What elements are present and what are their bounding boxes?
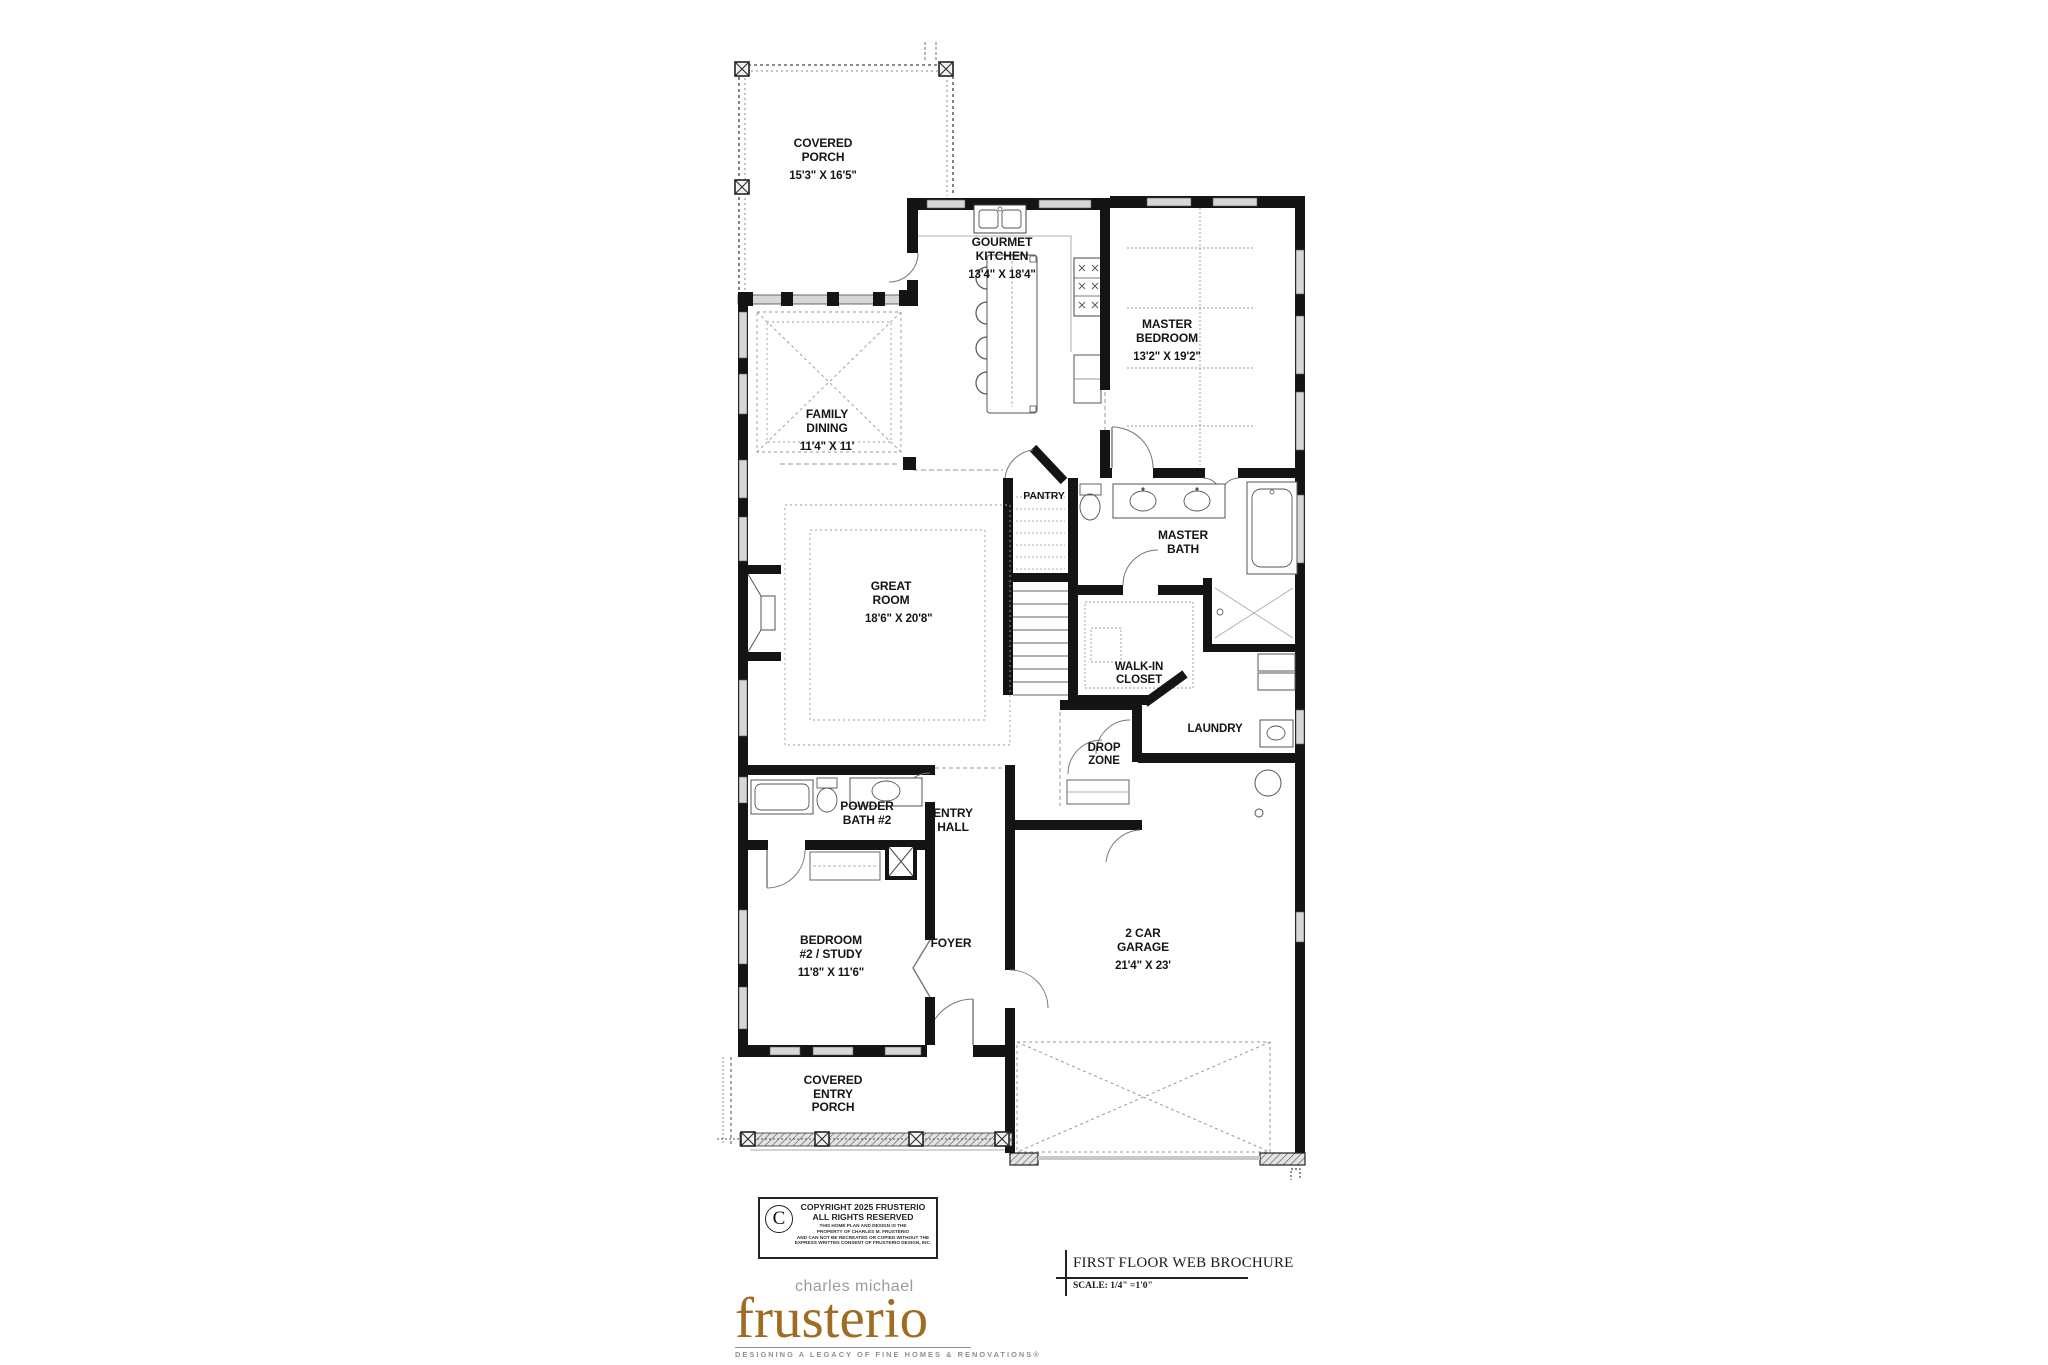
room-label-great-room: GREAT ROOM 18'6" X 20'8" bbox=[865, 580, 917, 626]
front-wall bbox=[738, 999, 1010, 1057]
room-label-2-car-garage: 2 CAR GARAGE 21'4" X 23' bbox=[1113, 927, 1173, 973]
room-label-walk-in-closet: WALK-IN CLOSET bbox=[1109, 661, 1169, 687]
room-label-pantry: PANTRY bbox=[1023, 491, 1064, 503]
kitchen-master-divider-wall bbox=[1100, 208, 1110, 478]
copyright-box: C COPYRIGHT 2025 FRUSTERIO ALL RIGHTS RE… bbox=[758, 1197, 938, 1259]
title-block: FIRST FLOOR WEB BROCHURE SCALE: 1/4" =1'… bbox=[1056, 1246, 1256, 1298]
kitchen-refrigerator bbox=[1074, 355, 1101, 403]
right-exterior-wall bbox=[1295, 196, 1305, 1165]
copyright-symbol: C bbox=[765, 1205, 793, 1233]
room-label-powder-bath-2: POWDER BATH #2 bbox=[839, 800, 895, 827]
room-label-laundry: LAUNDRY bbox=[1187, 723, 1242, 736]
floor-plan-svg bbox=[555, 40, 1315, 1180]
sheet-scale: SCALE: 1/4" =1'0" bbox=[1073, 1281, 1153, 1291]
room-label-gourmet-kitchen: GOURMET KITCHEN 13'4" X 18'4" bbox=[964, 236, 1040, 282]
sheet-title: FIRST FLOOR WEB BROCHURE bbox=[1073, 1255, 1294, 1272]
room-label-entry-hall: ENTRY HALL bbox=[931, 807, 975, 834]
room-label-foyer: FOYER bbox=[931, 937, 972, 951]
pantry-and-stairs bbox=[1003, 448, 1078, 703]
logo-wordmark: frusterio bbox=[735, 1296, 971, 1342]
kitchen-range bbox=[1074, 258, 1103, 316]
room-label-master-bath: MASTER BATH bbox=[1153, 529, 1213, 556]
room-label-drop-zone: DROP ZONE bbox=[1082, 742, 1126, 768]
floor-plan-page: COVERED PORCH 15'3" X 16'5" GOURMET KITC… bbox=[0, 0, 2048, 1365]
room-label-family-dining: FAMILY DINING 11'4" X 11' bbox=[799, 408, 855, 454]
room-label-master-bedroom: MASTER BEDROOM 13'2" X 19'2" bbox=[1127, 318, 1207, 364]
room-label-covered-porch: COVERED PORCH 15'3" X 16'5" bbox=[784, 137, 862, 183]
title-block-horizontal-rule bbox=[1056, 1277, 1248, 1279]
walk-in-closet bbox=[1068, 602, 1193, 705]
title-block-vertical-rule bbox=[1065, 1250, 1067, 1296]
frusterio-logo: charles michael frusterio DESIGNING A LE… bbox=[735, 1279, 971, 1359]
bedroom2-foyer-wall bbox=[913, 880, 935, 1045]
room-label-bedroom-2-study: BEDROOM #2 / STUDY 11'8" X 11'6" bbox=[792, 934, 870, 980]
floor-plan-drawing: COVERED PORCH 15'3" X 16'5" GOURMET KITC… bbox=[555, 40, 1315, 1180]
dining-top-wall bbox=[738, 290, 918, 306]
copyright-line2: ALL RIGHTS RESERVED bbox=[793, 1213, 933, 1223]
master-bath bbox=[1078, 482, 1298, 652]
drop-zone bbox=[1005, 700, 1142, 862]
room-label-covered-entry-porch: COVERED ENTRY PORCH bbox=[798, 1074, 868, 1115]
left-exterior-wall bbox=[738, 294, 748, 1057]
garage-door-wall bbox=[1010, 1153, 1305, 1180]
kitchen-sink bbox=[974, 205, 1026, 233]
